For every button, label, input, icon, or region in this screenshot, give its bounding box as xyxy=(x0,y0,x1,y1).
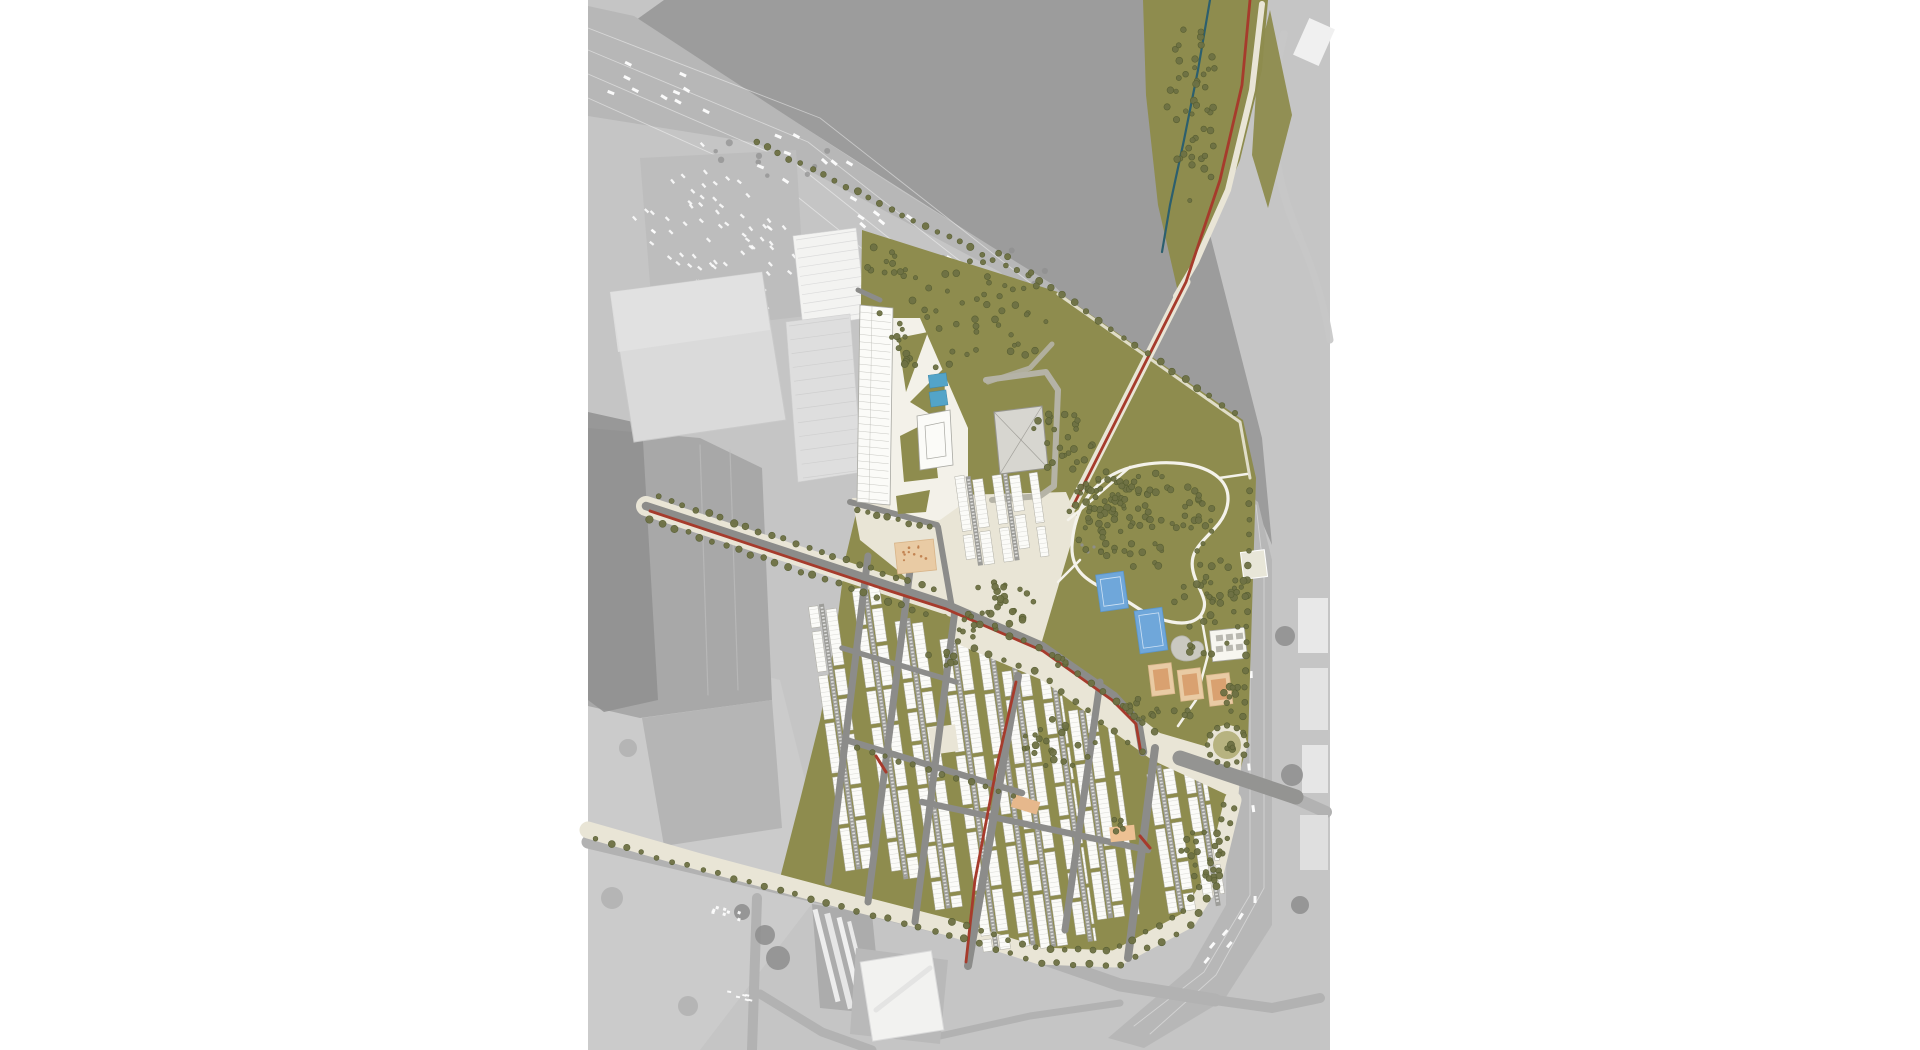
east-building xyxy=(1298,598,1328,653)
aerial-tree xyxy=(678,996,698,1016)
playground-icon xyxy=(1080,543,1083,546)
community-room xyxy=(1236,644,1244,651)
basketball-court xyxy=(1096,571,1129,612)
aerial-tree xyxy=(1291,896,1309,914)
aerial-tree xyxy=(755,925,775,945)
page-background xyxy=(0,0,1920,1050)
aerial-field-south xyxy=(642,700,782,846)
playground-icon xyxy=(1092,545,1095,548)
campus-linear-building xyxy=(857,305,893,505)
aerial-tree xyxy=(619,739,637,757)
aerial-tree xyxy=(601,887,623,909)
aerial-tree xyxy=(1281,764,1303,786)
pool xyxy=(929,390,948,407)
circle-plaza xyxy=(1212,730,1242,760)
community-room xyxy=(1216,646,1224,653)
play-square xyxy=(894,539,936,574)
aerial-tree xyxy=(766,946,790,970)
courtyard-building xyxy=(917,410,953,470)
road-vertical xyxy=(752,898,757,1050)
community-room xyxy=(1226,634,1234,641)
tennis-court-inner xyxy=(1182,673,1199,696)
community-room xyxy=(1236,633,1244,640)
market-building xyxy=(860,951,944,1041)
map-svg xyxy=(0,0,1920,1050)
community-room xyxy=(1216,635,1224,642)
pool xyxy=(928,373,948,388)
east-building xyxy=(1302,745,1328,793)
masterplan-aerial-map xyxy=(0,0,1920,1050)
aerial-tree xyxy=(1275,626,1295,646)
aerial-tree xyxy=(734,904,750,920)
east-building xyxy=(1300,668,1328,730)
tennis-court-inner xyxy=(1153,668,1170,691)
district-plaza xyxy=(928,724,958,754)
east-building xyxy=(1300,815,1328,870)
